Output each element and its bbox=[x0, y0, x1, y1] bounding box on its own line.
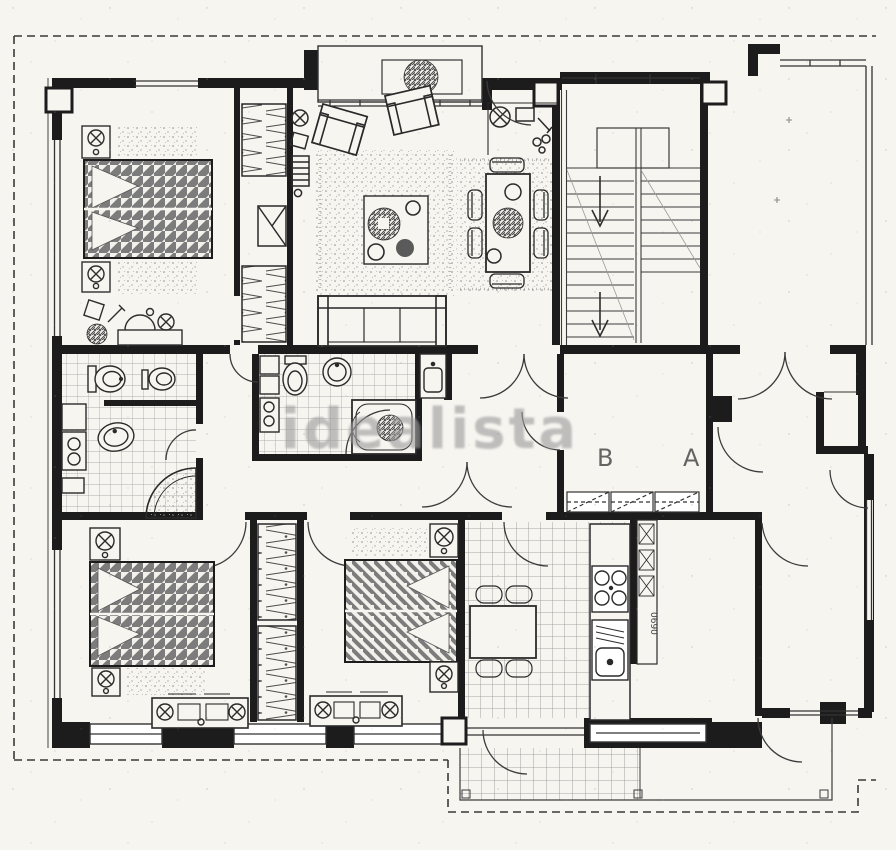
floor-plan-scan: B A bbox=[0, 0, 896, 850]
floor-plan-svg: B A bbox=[0, 0, 896, 850]
scan-noise bbox=[0, 0, 896, 850]
